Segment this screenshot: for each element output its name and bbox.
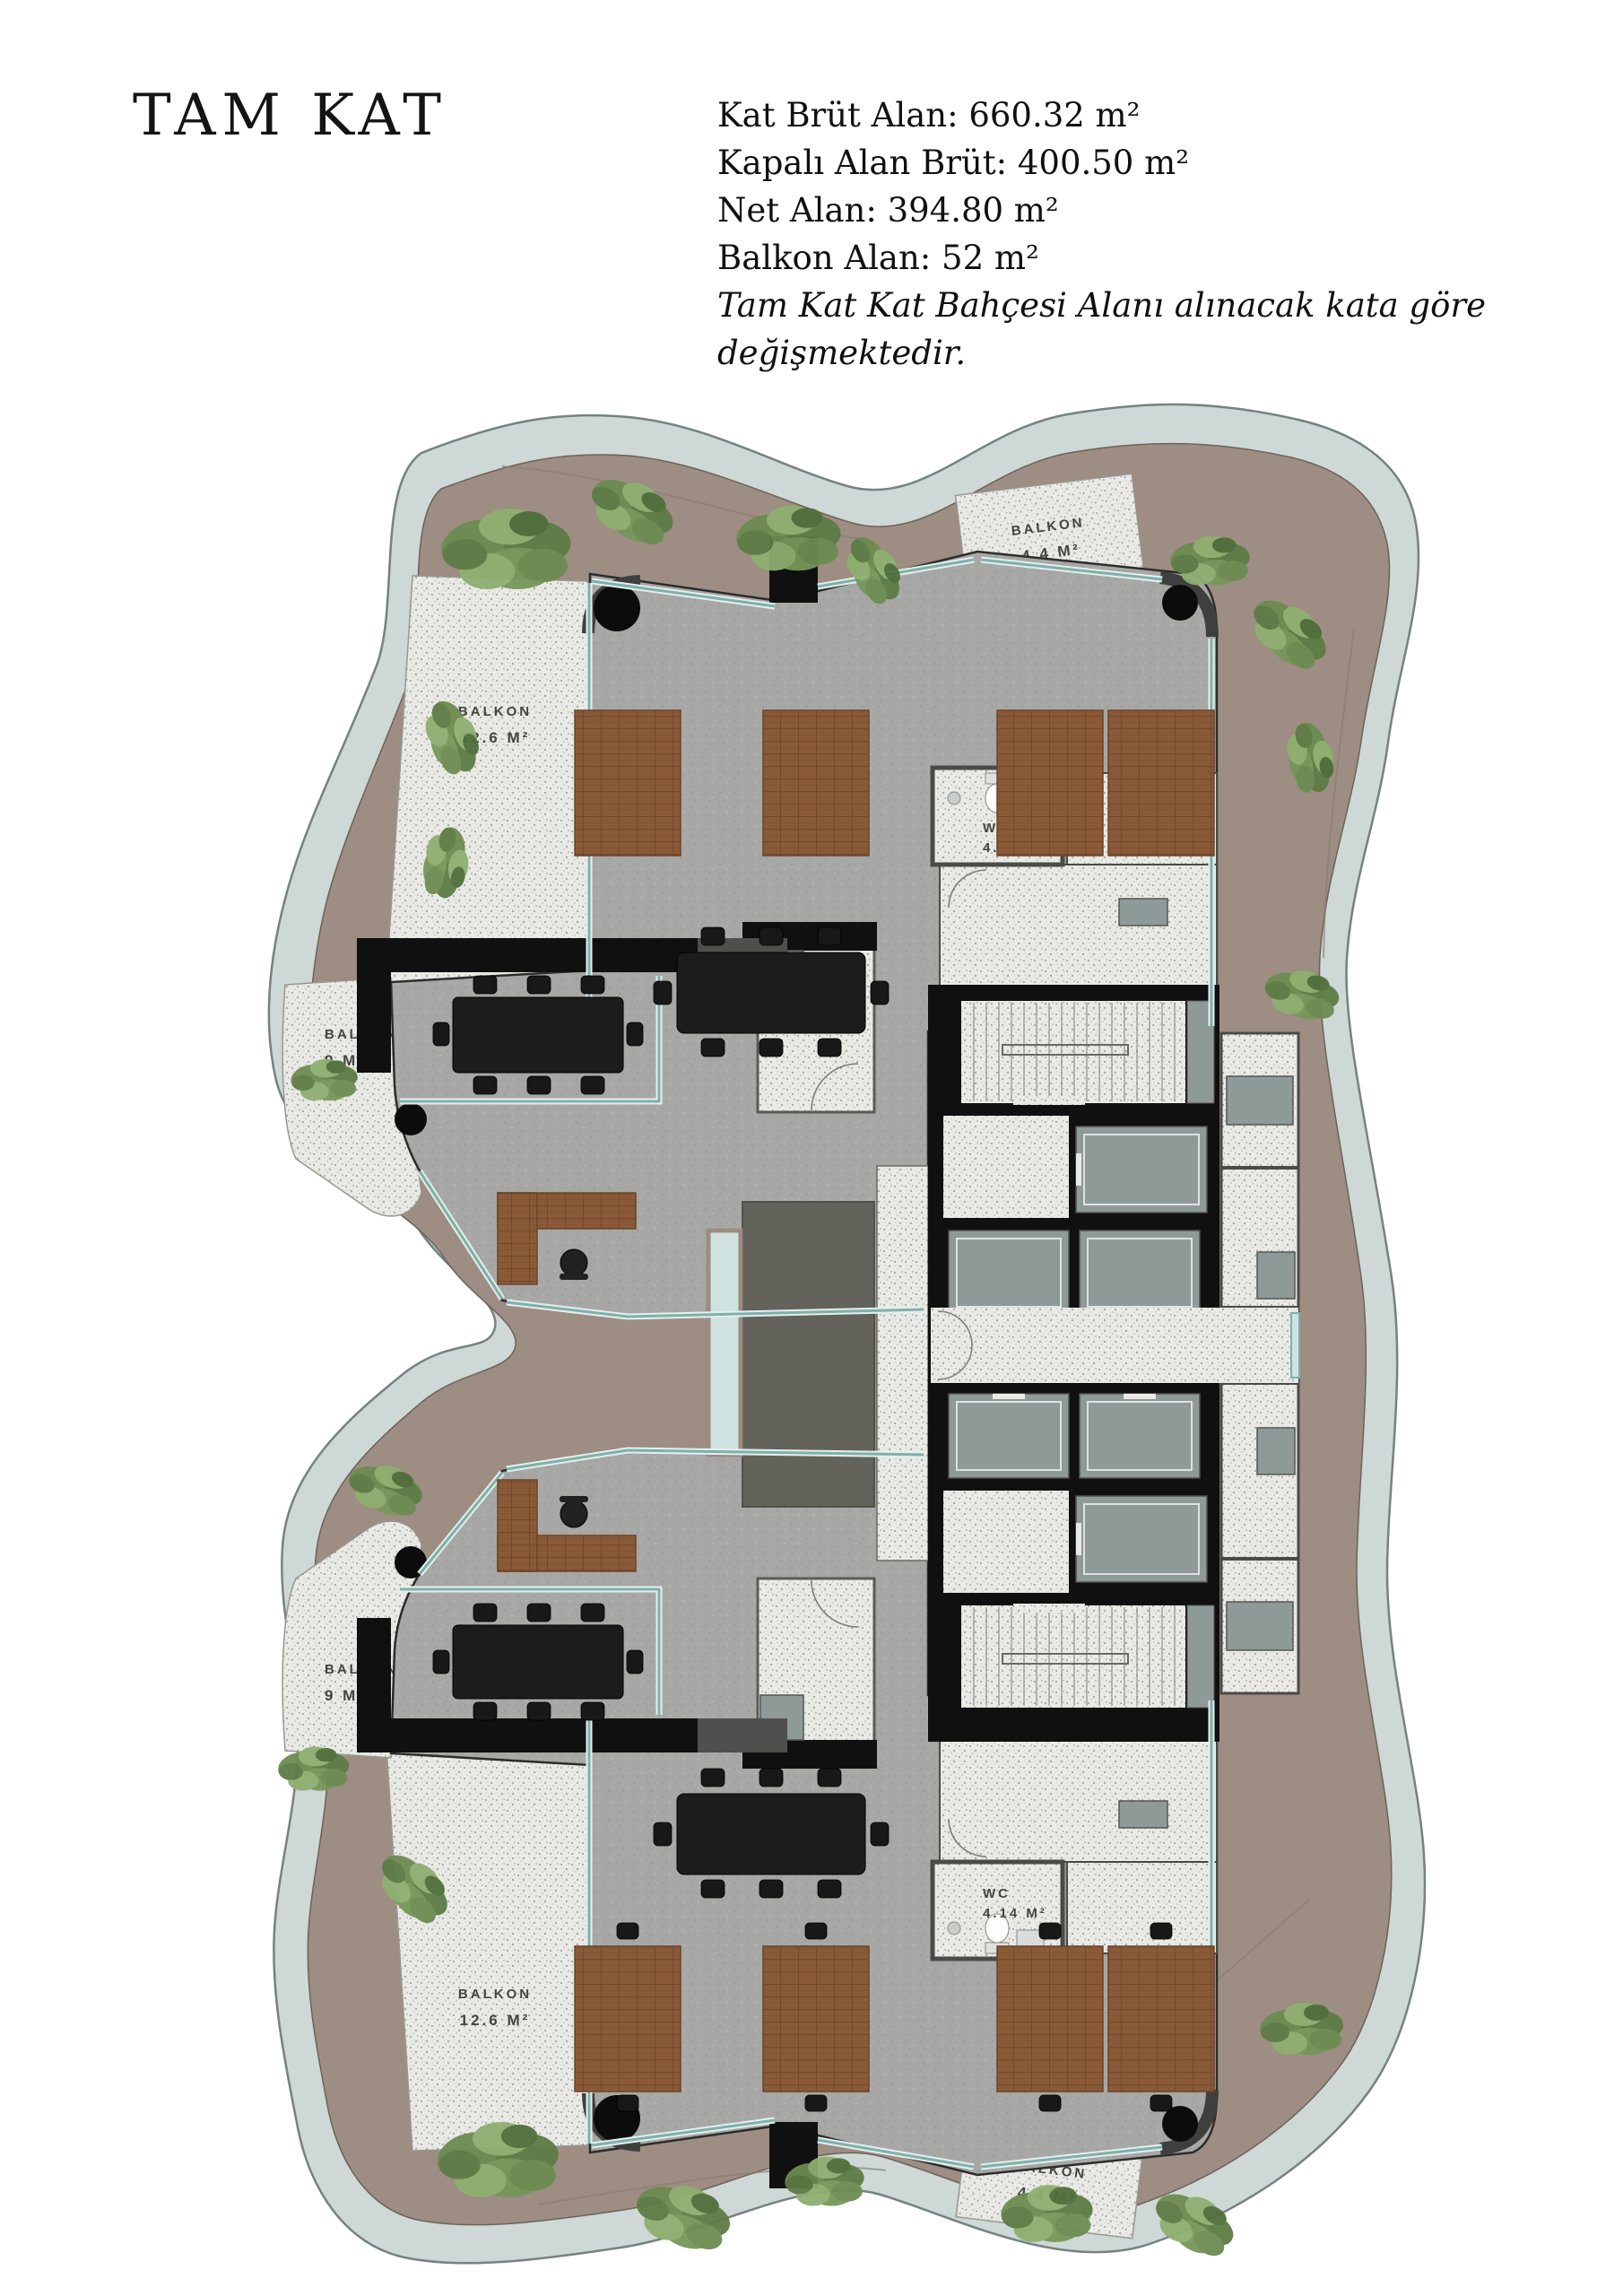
- stairs-top: [961, 1001, 1214, 1105]
- service-elevator-bottom: [1076, 1496, 1207, 1582]
- work-table: [997, 1946, 1103, 2092]
- service-elevator-top: [1076, 1126, 1207, 1213]
- balkon-12-6-bottom-label: BALKON: [458, 1987, 532, 2002]
- wc-bottom-value: 4.14 M²: [983, 1906, 1047, 1921]
- work-table: [1108, 1946, 1214, 2092]
- corridor-end-window: [1291, 1313, 1299, 1378]
- column: [1162, 585, 1198, 621]
- balkon-12-6-bottom-value: 12.6 M²: [460, 2012, 531, 2029]
- wc-room-bottom: WC 4.14 M²: [933, 1862, 1063, 1959]
- landing-bottom: [943, 1491, 1069, 1593]
- office-chair: [560, 1249, 587, 1276]
- work-table: [763, 710, 869, 856]
- wc-bottom-basin: [948, 1922, 960, 1935]
- conference-table: [677, 1794, 865, 1874]
- column: [395, 1103, 427, 1135]
- work-table: [575, 710, 681, 856]
- wc-top-basin: [948, 792, 960, 804]
- work-table: [575, 1946, 681, 2092]
- elevator-3: [949, 1394, 1069, 1478]
- elevator-4: [1080, 1394, 1200, 1478]
- meeting-table: [453, 1625, 623, 1699]
- core-west-corridor: [877, 1166, 928, 1561]
- meeting-table: [453, 997, 623, 1073]
- elevator-1: [949, 1231, 1069, 1315]
- balkon-12-6-top-label: BALKON: [458, 704, 532, 719]
- conference-table: [677, 952, 865, 1033]
- work-table: [763, 1946, 869, 2092]
- office-chair: [560, 1500, 587, 1527]
- wc-bottom-label: WC: [983, 1886, 1011, 1901]
- work-table: [1108, 710, 1214, 856]
- core-corridor: [931, 1308, 1298, 1383]
- elevator-2: [1080, 1231, 1200, 1315]
- stairs-bottom: [961, 1604, 1214, 1708]
- column: [594, 585, 640, 631]
- atrium-void: [742, 1202, 874, 1507]
- work-table: [997, 710, 1103, 856]
- balcony-12-6-bottom: BALKON 12.6 M²: [384, 1706, 587, 2151]
- floor-plan: BALKON 12.6 M² BALKON 12.6 M² BALKON 9 M…: [0, 0, 1623, 2296]
- atrium-glass-panel: [708, 1231, 741, 1455]
- page: TAM KAT Kat Brüt Alan: 660.32 m² Kapalı …: [0, 0, 1623, 2296]
- landing-top: [943, 1116, 1069, 1218]
